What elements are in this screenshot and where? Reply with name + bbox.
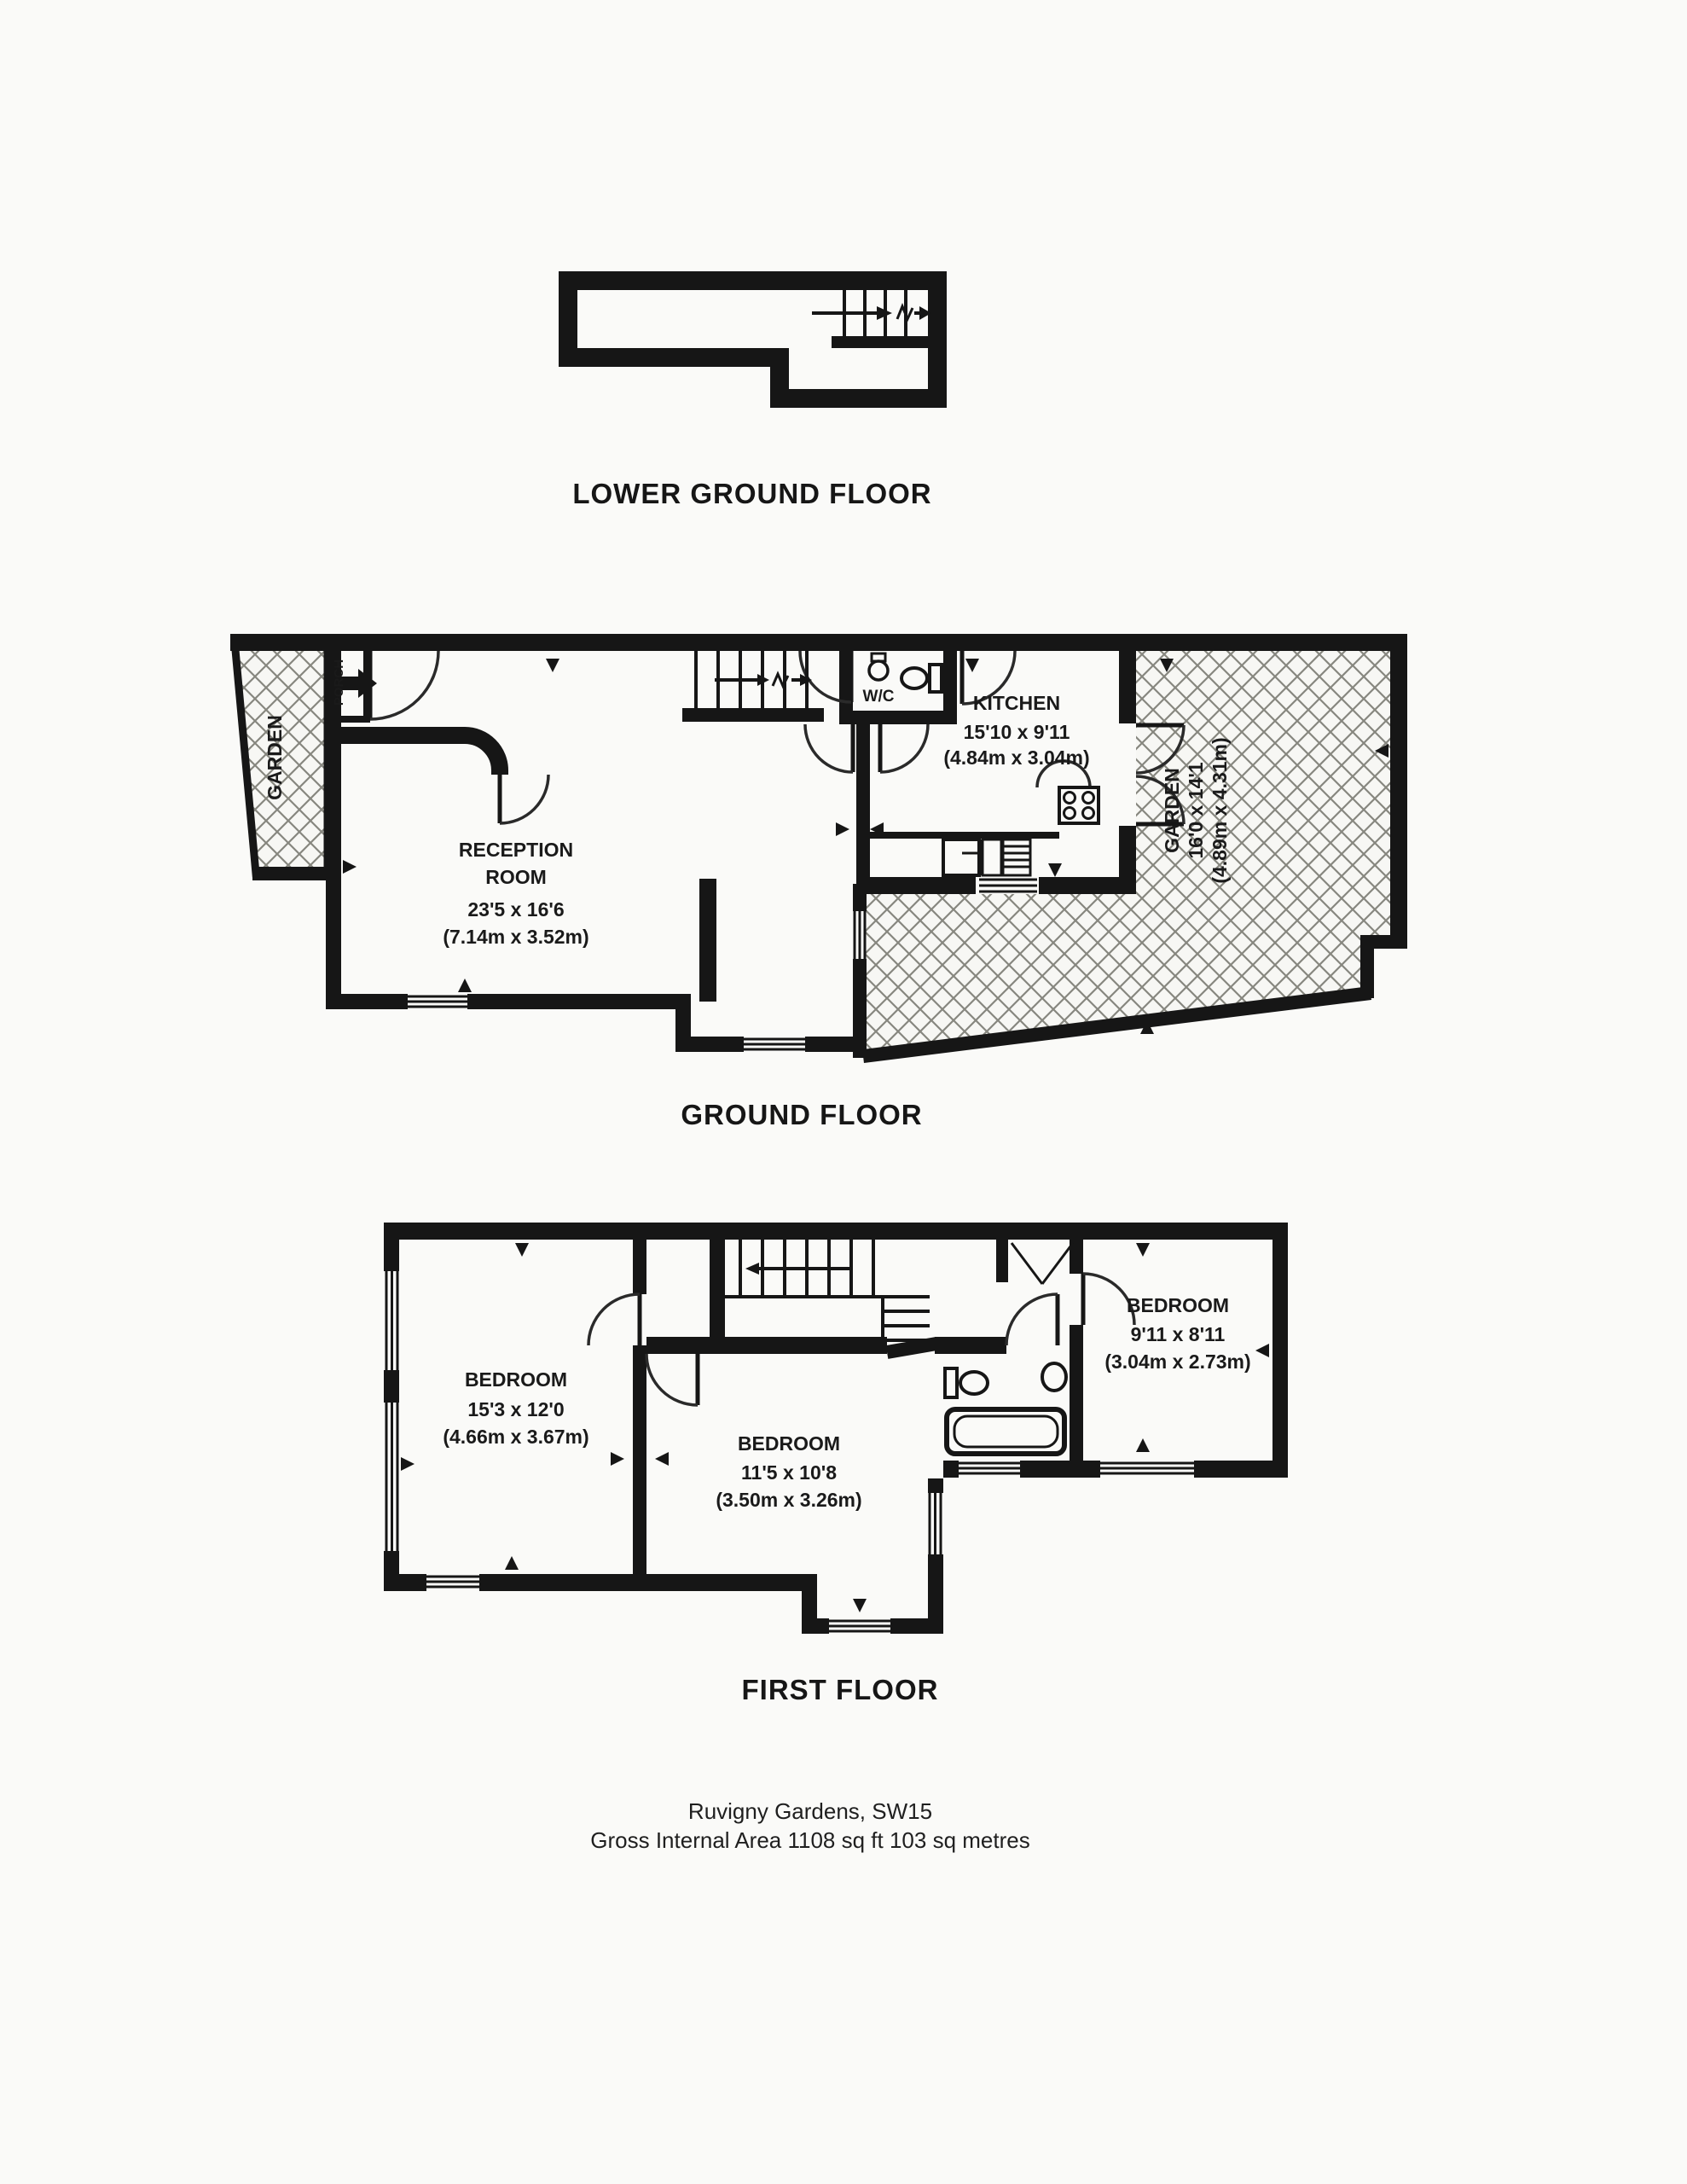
lower-ground-floor-plan: LOWER GROUND FLOOR xyxy=(559,271,947,509)
lower-ground-floor-title: LOWER GROUND FLOOR xyxy=(572,478,931,509)
toilet-icon xyxy=(901,665,942,692)
bathtub-icon xyxy=(947,1409,1064,1454)
cupboard-doors xyxy=(1012,1243,1073,1284)
first-floor-title: FIRST FLOOR xyxy=(742,1674,939,1705)
wc-sink-icon xyxy=(869,653,888,680)
reception-label-line2: ROOM xyxy=(485,866,547,888)
kitchen-label: KITCHEN xyxy=(973,692,1060,714)
footer-area: Gross Internal Area 1108 sq ft 103 sq me… xyxy=(590,1827,1029,1853)
reception-imperial: 23'5 x 16'6 xyxy=(467,898,564,921)
bedroom-front-metric: (4.66m x 3.67m) xyxy=(443,1426,588,1448)
wc-label: W/C xyxy=(863,688,895,706)
floorplan-page: LOWER GROUND FLOOR xyxy=(0,0,1687,2184)
porch-label: PORCH xyxy=(332,659,346,706)
kitchen-imperial: 15'10 x 9'11 xyxy=(964,721,1070,743)
garden-left-label: GARDEN xyxy=(264,715,286,800)
door-arcs xyxy=(588,1243,1134,1405)
hob-icon xyxy=(1037,761,1099,823)
bedroom-front-imperial: 15'3 x 12'0 xyxy=(467,1398,564,1420)
ground-floor-plan: GARDEN PORCH W/C KITCHEN 15'10 x 9'11 (4… xyxy=(230,634,1407,1130)
basin-icon xyxy=(1042,1363,1066,1391)
bedroom-front-label: BEDROOM xyxy=(465,1368,567,1391)
footer: Ruvigny Gardens, SW15 Gross Internal Are… xyxy=(590,1798,1029,1853)
bedroom-middle-label: BEDROOM xyxy=(738,1432,840,1455)
floorplan-drawing: LOWER GROUND FLOOR xyxy=(0,0,1687,2184)
bedroom-middle-metric: (3.50m x 3.26m) xyxy=(716,1489,861,1511)
first-floor-plan: BEDROOM 15'3 x 12'0 (4.66m x 3.67m) BEDR… xyxy=(384,1223,1288,1705)
footer-address: Ruvigny Gardens, SW15 xyxy=(688,1798,932,1824)
stairs-icon xyxy=(812,290,931,336)
garden-right-label: GARDEN xyxy=(1161,768,1183,853)
garden-right-metric: (4.89m x 4.31m) xyxy=(1209,737,1231,883)
stairs-icon xyxy=(725,1240,930,1354)
garden-steps-icon xyxy=(979,839,1037,892)
reception-label-line1: RECEPTION xyxy=(459,839,573,861)
garden-right-imperial: 16'0 x 14'1 xyxy=(1185,762,1207,858)
kitchen-sink-icon xyxy=(943,839,1001,875)
bedroom-back-metric: (3.04m x 2.73m) xyxy=(1104,1350,1250,1373)
reception-metric: (7.14m x 3.52m) xyxy=(443,926,588,948)
stairs-icon xyxy=(696,651,812,708)
bedroom-middle-imperial: 11'5 x 10'8 xyxy=(741,1461,837,1484)
kitchen-metric: (4.84m x 3.04m) xyxy=(943,746,1089,769)
lgf-stair-wall xyxy=(832,336,928,348)
bedroom-back-imperial: 9'11 x 8'11 xyxy=(1131,1323,1226,1345)
toilet-icon xyxy=(945,1368,988,1397)
bedroom-back-label: BEDROOM xyxy=(1127,1294,1229,1316)
ground-floor-title: GROUND FLOOR xyxy=(681,1099,922,1130)
